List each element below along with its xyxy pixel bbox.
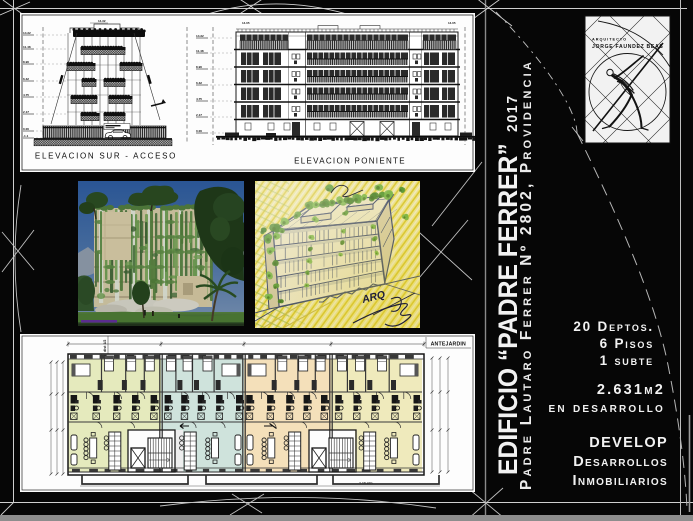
svg-text:JORGE FAUNDEZ BEAS: JORGE FAUNDEZ BEAS [592,44,663,50]
svg-text:8.90: 8.90 [196,65,202,69]
svg-text:14.32: 14.32 [23,31,31,35]
svg-text:4.75: 4.75 [23,93,29,97]
svg-text:14.32: 14.32 [196,34,204,38]
svg-text:4.75: 4.75 [196,97,202,101]
svg-text:ANTEJARDIN: ANTEJARDIN [431,342,466,348]
svg-text:8.90: 8.90 [23,60,29,64]
svg-text:11.48: 11.48 [23,45,31,49]
svg-text:11.48: 11.48 [196,49,204,53]
svg-text:14.05: 14.05 [242,21,250,25]
svg-text:14.05: 14.05 [448,21,456,25]
svg-text:2.17: 2.17 [196,113,202,117]
svg-text:dist 1/2: dist 1/2 [103,340,107,352]
svg-text:-1.1: -1.1 [23,134,29,138]
svg-text:0.00: 0.00 [196,129,202,133]
svg-text:6.32: 6.32 [23,77,29,81]
svg-text:ELEVACION PONIENTE: ELEVACION PONIENTE [294,157,406,166]
svg-text:ELEVACION SUR - ACCESO: ELEVACION SUR - ACCESO [35,152,177,161]
svg-text:2.17: 2.17 [23,110,29,114]
svg-text:ARQUITECTO: ARQUITECTO [592,38,627,42]
svg-text:0.00: 0.00 [23,127,29,131]
svg-text:6.32: 6.32 [196,81,202,85]
svg-text:14.32: 14.32 [98,19,106,23]
